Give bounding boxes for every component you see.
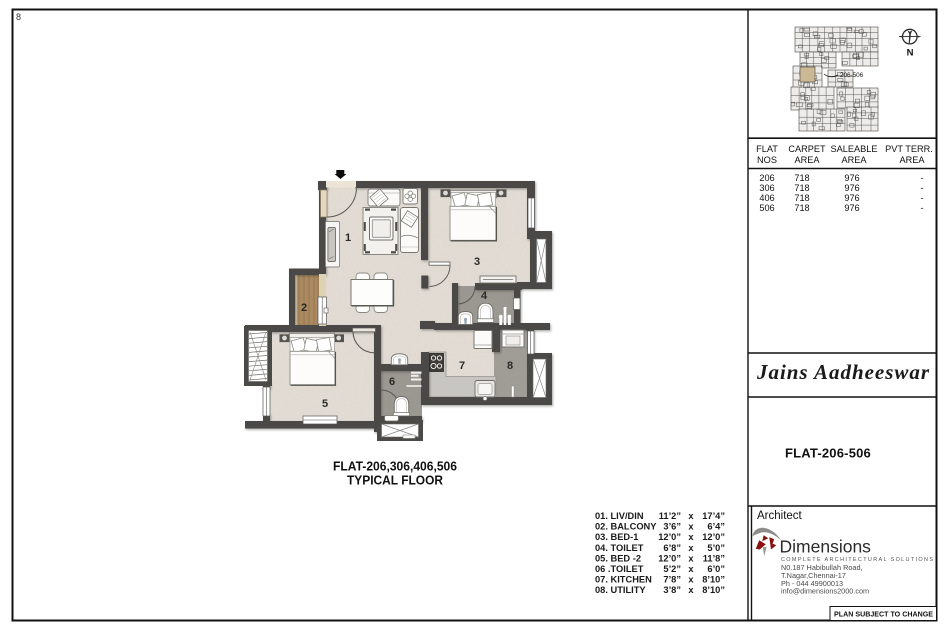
svg-text:12’0”: 12’0”: [702, 532, 725, 542]
svg-text:FLAT: FLAT: [756, 144, 778, 154]
svg-text:x: x: [688, 522, 694, 532]
svg-text:11’8”: 11’8”: [703, 553, 725, 563]
svg-text:NOS: NOS: [757, 155, 777, 165]
svg-text:AREA: AREA: [899, 155, 925, 165]
svg-text:718: 718: [794, 193, 809, 203]
svg-text:8: 8: [16, 12, 21, 22]
svg-text:3’8”: 3’8”: [663, 585, 681, 595]
svg-text:12’0”: 12’0”: [658, 532, 681, 542]
svg-text:COMPLETE ARCHITECTURAL SOLUTIO: COMPLETE ARCHITECTURAL SOLUTIONS: [781, 557, 933, 563]
svg-text:x: x: [688, 575, 694, 585]
svg-text:Architect: Architect: [757, 510, 803, 522]
svg-text:06 .TOILET: 06 .TOILET: [595, 564, 644, 574]
svg-text:7’8”: 7’8”: [663, 575, 681, 585]
svg-text:976: 976: [844, 203, 859, 213]
svg-text:-: -: [920, 193, 923, 203]
svg-text:6’4”: 6’4”: [707, 522, 725, 532]
svg-text:4: 4: [481, 290, 488, 302]
svg-text:976: 976: [844, 183, 859, 193]
svg-text:x: x: [688, 543, 694, 553]
svg-text:01. LIV/DIN: 01. LIV/DIN: [595, 511, 644, 521]
svg-text:6’0”: 6’0”: [707, 564, 725, 574]
svg-text:5: 5: [322, 398, 328, 410]
svg-text:08. UTILITY: 08. UTILITY: [595, 585, 646, 595]
svg-text:info@dimensions2000.com: info@dimensions2000.com: [781, 587, 869, 596]
svg-text:306: 306: [759, 183, 774, 193]
svg-text:FLAT-206-506: FLAT-206-506: [785, 446, 871, 461]
svg-text:7: 7: [459, 360, 465, 372]
svg-text:3: 3: [474, 256, 480, 268]
svg-text:17’4”: 17’4”: [702, 511, 725, 521]
svg-text:02. BALCONY: 02. BALCONY: [595, 522, 657, 532]
svg-text:8’10”: 8’10”: [702, 585, 725, 595]
svg-text:x: x: [688, 564, 694, 574]
svg-text:x: x: [688, 532, 694, 542]
svg-text:Jains Aadheeswar: Jains Aadheeswar: [756, 360, 930, 384]
svg-text:506: 506: [759, 203, 774, 213]
svg-text:718: 718: [794, 183, 809, 193]
svg-text:x: x: [688, 553, 694, 563]
svg-text:-: -: [920, 173, 923, 183]
svg-text:Dimensions: Dimensions: [780, 537, 872, 557]
svg-text:x: x: [688, 585, 694, 595]
svg-text:5’2”: 5’2”: [663, 564, 681, 574]
svg-text:2: 2: [301, 302, 307, 314]
svg-text:04. TOILET: 04. TOILET: [595, 543, 644, 553]
svg-text:206-506: 206-506: [840, 72, 864, 79]
svg-text:AREA: AREA: [841, 155, 867, 165]
svg-text:-: -: [920, 203, 923, 213]
svg-text:PVT TERR.: PVT TERR.: [885, 144, 933, 154]
svg-text:406: 406: [759, 193, 774, 203]
svg-text:6: 6: [389, 376, 395, 388]
svg-text:03. BED-1: 03. BED-1: [595, 532, 638, 542]
svg-text:TYPICAL FLOOR: TYPICAL FLOOR: [347, 473, 443, 488]
svg-text:AREA: AREA: [794, 155, 820, 165]
svg-text:PLAN SUBJECT TO CHANGE: PLAN SUBJECT TO CHANGE: [834, 609, 933, 618]
svg-text:11’2”: 11’2”: [659, 511, 681, 521]
svg-text:12’0”: 12’0”: [658, 553, 681, 563]
svg-text:N: N: [907, 48, 914, 59]
svg-text:-: -: [920, 183, 923, 193]
svg-text:3’6”: 3’6”: [663, 522, 681, 532]
svg-text:1: 1: [345, 232, 351, 244]
svg-text:x: x: [688, 511, 694, 521]
svg-text:8: 8: [507, 360, 513, 372]
svg-text:05. BED -2: 05. BED -2: [595, 553, 641, 563]
svg-text:718: 718: [794, 203, 809, 213]
svg-text:SALEABLE: SALEABLE: [831, 144, 878, 154]
svg-text:6’8”: 6’8”: [663, 543, 681, 553]
svg-text:976: 976: [844, 173, 859, 183]
svg-text:8’10”: 8’10”: [702, 575, 725, 585]
svg-text:CARPET: CARPET: [788, 144, 826, 154]
svg-text:FLAT-206,306,406,506: FLAT-206,306,406,506: [333, 459, 457, 474]
svg-text:07. KITCHEN: 07. KITCHEN: [595, 575, 652, 585]
svg-text:206: 206: [759, 173, 774, 183]
svg-text:976: 976: [844, 193, 859, 203]
svg-text:5’0”: 5’0”: [707, 543, 725, 553]
svg-text:718: 718: [794, 173, 809, 183]
